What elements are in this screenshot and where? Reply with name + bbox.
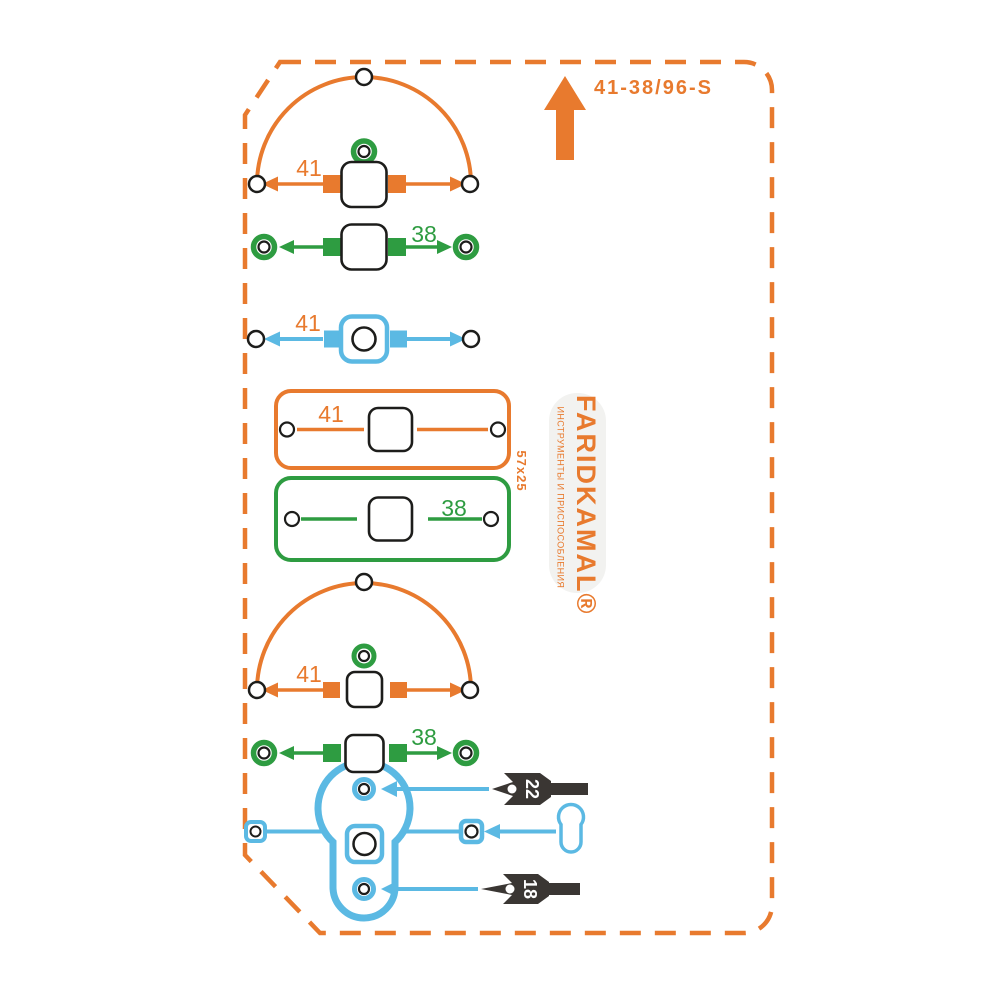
template-graphics — [0, 0, 1000, 1000]
pilot-hole — [248, 331, 264, 347]
top-handle-group — [249, 69, 478, 207]
spindle-square-cutout — [347, 672, 382, 707]
arrowhead-left — [279, 746, 294, 760]
screw-hole — [491, 423, 505, 437]
left-reference-square — [246, 822, 265, 841]
dim-label-38-green-plate: 38 — [434, 497, 474, 520]
brand-name: FARIDKAMAL® — [571, 395, 599, 587]
dim-label-41-bottom-arc: 41 — [289, 663, 329, 686]
dim-label-41-top-arc: 41 — [289, 157, 329, 180]
cylinder-mid-square — [347, 826, 382, 862]
spindle-square-cutout — [346, 735, 384, 772]
pilot-hole — [356, 69, 372, 85]
drilling-template-sheet: 41-38/96-S 41 38 41 41 38 57x25 FARIDKAM… — [0, 0, 1000, 1000]
pilot-hole — [249, 176, 265, 192]
brand-tagline: ИНСТРУМЕНТЫ И ПРИСПОСОБЛЕНИЯ — [554, 407, 565, 575]
blue-backset-row — [248, 317, 479, 362]
green-ring-hole — [354, 141, 375, 162]
cylinder-top-hole — [355, 780, 374, 799]
spindle-square-cutout — [369, 498, 412, 541]
screw-hole — [285, 512, 299, 526]
screw-hole — [484, 512, 498, 526]
model-number: 41-38/96-S — [594, 78, 754, 98]
pilot-hole — [356, 574, 372, 590]
dim-label-41-orange-plate: 41 — [311, 403, 351, 426]
spindle-square-cutout — [369, 408, 412, 451]
plate-size-label: 57x25 — [514, 448, 528, 494]
dim-label-41-blue-row: 41 — [288, 312, 328, 335]
bottom-handle-group — [249, 574, 478, 707]
dim-label-38-top: 38 — [404, 223, 444, 246]
pilot-hole — [462, 176, 478, 192]
pilot-hole — [249, 682, 265, 698]
spindle-square-cutout — [342, 225, 387, 270]
green-faceplate — [276, 478, 509, 560]
keyhole-arrow — [484, 824, 556, 839]
drill-diameter-22: 22 — [521, 776, 541, 802]
drill-hole — [353, 328, 376, 351]
drill-diameter-18: 18 — [519, 876, 539, 902]
green-ring-hole — [354, 646, 374, 666]
dim-label-38-bottom: 38 — [404, 726, 444, 749]
spindle-square-cutout — [342, 162, 387, 207]
screw-hole — [280, 423, 294, 437]
arrowhead-left — [264, 332, 280, 347]
right-reference-square — [461, 821, 482, 842]
up-arrow-icon — [544, 76, 586, 160]
pilot-hole — [462, 682, 478, 698]
cylinder-bottom-hole — [355, 880, 374, 899]
arrowhead-left — [279, 240, 294, 254]
keyhole-icon — [559, 805, 584, 853]
drill-18-arrow — [381, 881, 478, 897]
pilot-hole — [463, 331, 479, 347]
